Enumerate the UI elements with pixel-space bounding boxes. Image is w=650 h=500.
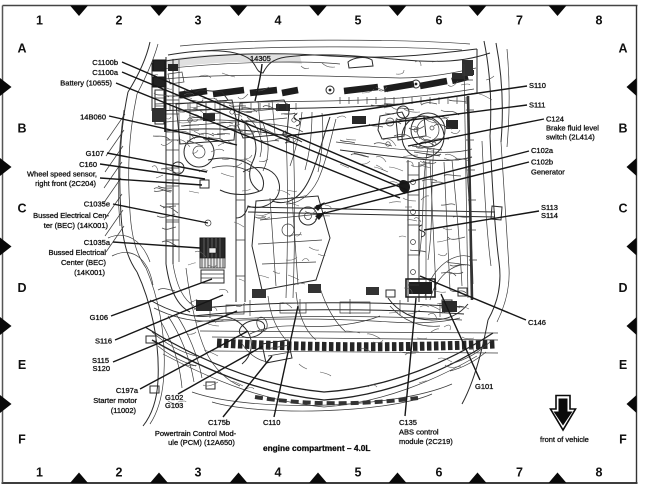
svg-text:engine compartment – 4.0L: engine compartment – 4.0L (263, 443, 370, 453)
svg-text:3: 3 (195, 14, 202, 28)
svg-text:4: 4 (275, 14, 282, 28)
svg-text:C1100b: C1100b (92, 58, 118, 67)
svg-text:front of vehicle: front of vehicle (540, 435, 589, 444)
svg-text:14B060: 14B060 (80, 113, 106, 122)
svg-text:A: A (17, 42, 26, 56)
svg-text:E: E (18, 358, 26, 372)
svg-text:C: C (618, 202, 627, 216)
svg-text:S116: S116 (95, 337, 112, 346)
svg-text:(11002): (11002) (111, 406, 137, 415)
svg-text:C102b: C102b (531, 158, 553, 167)
svg-text:D: D (618, 281, 627, 295)
svg-text:S114: S114 (541, 211, 558, 220)
svg-text:Starter motor: Starter motor (93, 396, 137, 405)
svg-text:B: B (17, 122, 26, 136)
svg-text:1: 1 (36, 14, 43, 28)
svg-text:module (2C219): module (2C219) (399, 437, 453, 446)
svg-text:switch (2L414): switch (2L414) (546, 133, 595, 142)
svg-text:8: 8 (596, 466, 603, 480)
svg-text:ABS control: ABS control (399, 428, 439, 437)
svg-text:G106: G106 (90, 313, 108, 322)
svg-text:(14K001): (14K001) (74, 268, 105, 277)
svg-text:C110: C110 (263, 418, 280, 427)
svg-text:F: F (18, 433, 26, 447)
svg-text:2: 2 (116, 14, 123, 28)
svg-text:6: 6 (436, 14, 443, 28)
svg-text:7: 7 (516, 14, 523, 28)
svg-text:C102a: C102a (531, 146, 554, 155)
svg-text:C1035a: C1035a (84, 238, 111, 247)
svg-text:E: E (619, 358, 627, 372)
svg-text:7: 7 (516, 466, 523, 480)
svg-text:S110: S110 (529, 81, 546, 90)
svg-text:C160: C160 (79, 160, 97, 169)
svg-text:ter (BEC) (14K001): ter (BEC) (14K001) (44, 221, 109, 230)
svg-text:14305: 14305 (250, 54, 271, 63)
svg-text:Powertrain Control Mod-: Powertrain Control Mod- (155, 429, 237, 438)
svg-text:right front (2C204): right front (2C204) (35, 179, 96, 188)
svg-text:B: B (618, 122, 627, 136)
svg-text:3: 3 (195, 466, 202, 480)
svg-text:1: 1 (36, 466, 43, 480)
svg-text:C175b: C175b (208, 418, 230, 427)
svg-text:S120: S120 (92, 364, 110, 373)
svg-text:S111: S111 (529, 101, 545, 110)
svg-text:A: A (618, 42, 627, 56)
svg-text:Bussed Electrical: Bussed Electrical (48, 248, 106, 257)
svg-text:G101: G101 (475, 382, 493, 391)
svg-text:C124: C124 (546, 115, 564, 124)
svg-text:6: 6 (436, 466, 443, 480)
svg-text:2: 2 (116, 466, 123, 480)
svg-text:Center (BEC): Center (BEC) (61, 258, 107, 267)
svg-text:C: C (17, 202, 26, 216)
svg-text:G107: G107 (86, 149, 104, 158)
svg-text:C1100a: C1100a (92, 68, 119, 77)
svg-text:C197a: C197a (116, 386, 139, 395)
svg-text:Brake fluid level: Brake fluid level (546, 124, 599, 133)
svg-text:C146: C146 (528, 318, 546, 327)
svg-text:G103: G103 (165, 401, 183, 410)
svg-text:Bussed Electrical Cen-: Bussed Electrical Cen- (33, 211, 109, 220)
svg-text:5: 5 (355, 14, 362, 28)
svg-text:8: 8 (596, 14, 603, 28)
svg-text:C1035e: C1035e (84, 200, 110, 209)
svg-text:Wheel speed sensor,: Wheel speed sensor, (27, 170, 97, 179)
svg-text:5: 5 (355, 466, 362, 480)
svg-text:Generator: Generator (531, 168, 565, 177)
svg-text:D: D (17, 281, 26, 295)
svg-text:ule (PCM) (12A650): ule (PCM) (12A650) (168, 438, 235, 447)
svg-text:F: F (619, 433, 627, 447)
svg-text:C135: C135 (399, 418, 417, 427)
svg-text:4: 4 (275, 466, 282, 480)
svg-text:Battery (10655): Battery (10655) (60, 79, 112, 88)
